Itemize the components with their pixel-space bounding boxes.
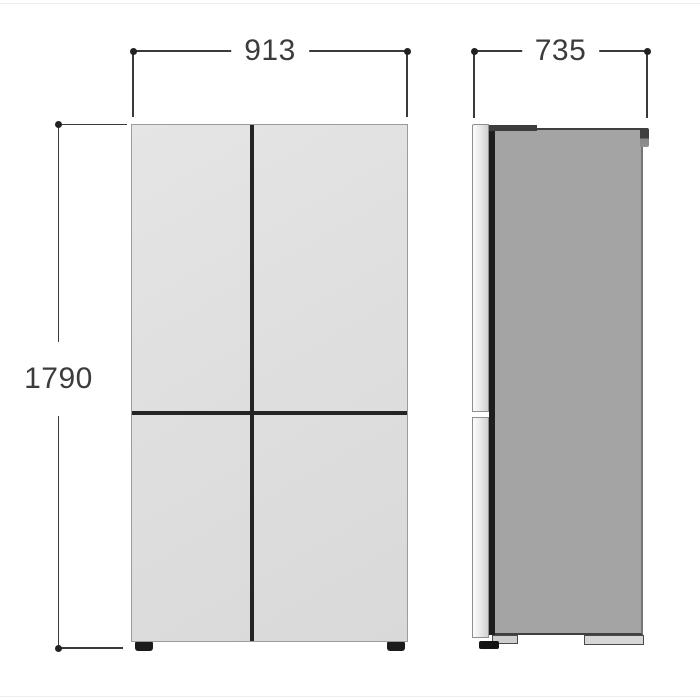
front-foot-right: [387, 642, 405, 652]
front-foot-left: [135, 642, 153, 652]
side-top-hinge-cover: [489, 125, 537, 132]
side-cabinet-body: [495, 128, 643, 635]
depth-extension-right: [646, 51, 648, 118]
height-endpoint-top: [55, 121, 62, 128]
front-door-horizontal-split: [132, 411, 407, 415]
bottom-hairline: [0, 696, 700, 697]
side-door-edge-lower: [472, 417, 489, 638]
width-endpoint-left: [130, 48, 137, 55]
width-extension-left: [132, 51, 134, 117]
front-door-vertical-split: [250, 125, 254, 641]
dimension-diagram: 913 735 1790: [0, 0, 700, 700]
side-rear-hinge: [640, 128, 650, 147]
depth-endpoint-right: [644, 48, 651, 55]
depth-extension-left: [473, 51, 475, 118]
height-value-label: 1790: [18, 342, 99, 416]
side-door-gap: [489, 125, 495, 635]
height-endpoint-bottom: [55, 645, 62, 652]
depth-value-label: 735: [522, 32, 600, 70]
front-view: [131, 124, 408, 642]
height-extension-top: [59, 124, 128, 126]
depth-endpoint-left: [471, 48, 478, 55]
width-extension-right: [406, 51, 408, 117]
height-extension-bottom: [59, 647, 124, 649]
side-front-foot: [479, 641, 499, 649]
side-door-edge-upper: [472, 124, 489, 412]
top-hairline: [0, 3, 700, 4]
width-value-label: 913: [231, 32, 309, 70]
width-endpoint-right: [404, 48, 411, 55]
side-base-rear: [584, 635, 644, 645]
